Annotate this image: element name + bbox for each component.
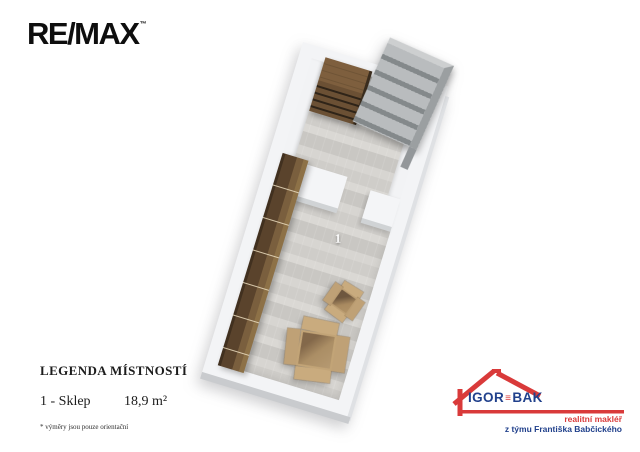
- agency-tagline-red: realitní makléř: [564, 414, 622, 424]
- remax-wordmark: RE/MAX: [27, 16, 139, 51]
- agency-logo: IGOR≡BAK realitní makléř z týmu Františk…: [452, 366, 630, 438]
- cardboard-box-large: [281, 315, 352, 386]
- box-interior: [296, 330, 337, 371]
- page: RE/MAX™ 1 LEGENDA MÍSTNOSTÍ: [0, 0, 640, 452]
- agency-tagline-blue: z týmu Františka Babčického: [505, 424, 622, 434]
- agency-name-separator: ≡: [505, 393, 511, 404]
- legend-room-name: 1 - Sklep: [40, 394, 91, 409]
- agency-name-first: IGOR: [468, 390, 504, 405]
- trademark-symbol: ™: [140, 21, 147, 28]
- legend-footnote: * výměry jsou pouze orientační: [40, 423, 210, 431]
- legend-title: LEGENDA MÍSTNOSTÍ: [40, 363, 210, 379]
- legend: LEGENDA MÍSTNOSTÍ 1 - Sklep 18,9 m² * vý…: [40, 363, 210, 431]
- room-number-label: 1: [331, 231, 345, 247]
- remax-logo: RE/MAX™: [27, 16, 147, 52]
- agency-name: IGOR≡BAK: [468, 390, 543, 405]
- legend-room-area: 18,9 m²: [124, 394, 167, 410]
- agency-name-second: BAK: [512, 390, 542, 405]
- legend-row: 1 - Sklep 18,9 m²: [40, 394, 210, 410]
- floor-plan-room: 1: [202, 42, 448, 416]
